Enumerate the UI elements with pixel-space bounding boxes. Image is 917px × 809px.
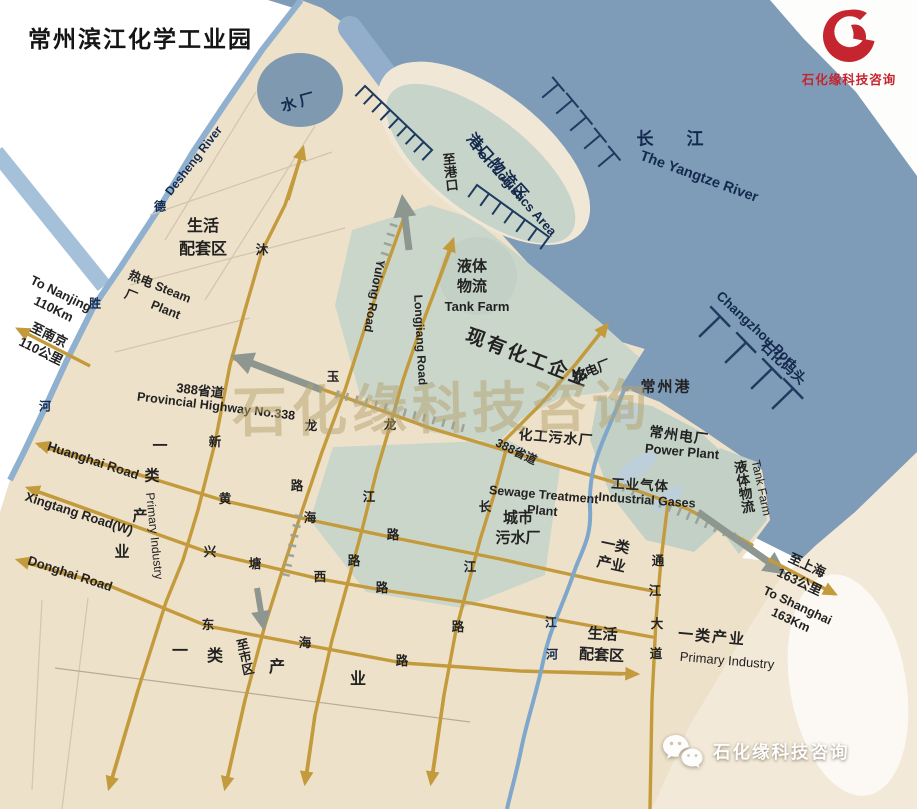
wechat-watermark-text: 石化缘科技咨询 [713, 739, 850, 764]
water-plant-area [257, 53, 343, 127]
map-title: 常州滨江化学工业园 [28, 20, 253, 54]
wechat-watermark: 石化缘科技咨询 [662, 734, 850, 768]
industrial-park-map: 水厂至港口港口物流区Port Logistics Area长 江The Yang… [0, 0, 917, 809]
brand-name: 石化缘科技咨询 [797, 69, 901, 88]
brand-badge: 石化缘科技咨询 [797, 6, 901, 88]
brand-logo-icon [816, 6, 882, 68]
wechat-icon [662, 734, 704, 768]
center-watermark: 石化缘科技咨询 [231, 360, 652, 447]
